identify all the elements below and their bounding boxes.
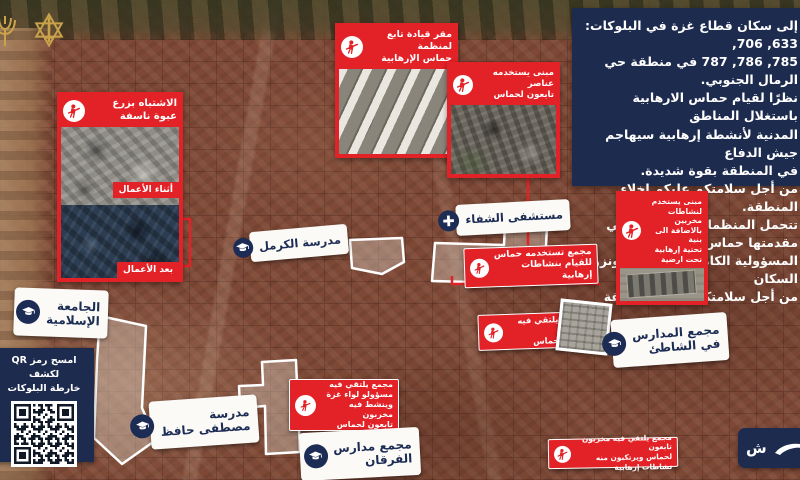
callout-building-text: مبنى يستخدمه عناصرتابعون لحماس [477,68,554,101]
callout-hamas-hq: مقر قيادة تابع لمنظمةحماس الإرهابية [335,23,458,158]
redbox-brigade-officials: مجمع يلتقي فيهمسؤولو لواء غزةوينشط فيه م… [289,379,399,431]
militant-icon [63,100,85,122]
militant-icon [470,258,490,278]
idf-emblems [0,10,68,50]
label-karmel-school-text: مدرسة الكرمل [258,232,341,254]
callout-underground-text: مبنى يستخدم لنشاطاتمخربين بالاضافة الى ب… [645,197,702,264]
redbox-brigade-officials-text: مجمع يلتقي فيهمسؤولو لواء غزةوينشط فيه م… [320,380,393,431]
militant-icon [341,36,363,58]
graduation-cap-icon [232,237,254,259]
callout-hq-header: مقر قيادة تابع لمنظمةحماس الإرهابية [339,27,454,69]
building-footprint [627,271,696,297]
callout-ied-text: الاشتباه بزرععبوة ناسفة [89,98,177,123]
satellite-photo-hq [339,69,454,154]
callout-ied-header: الاشتباه بزرععبوة ناسفة [61,96,179,127]
militant-icon [554,445,571,462]
label-furqan-schools-text: مجمع مدارسالفرقان [333,437,413,470]
tag-during-works: أثناء الأعمال [113,182,179,198]
broadcast-menorah-icon [0,10,20,50]
swoosh-logo-icon [773,437,800,459]
graduation-cap-icon [130,414,156,440]
militant-icon [295,395,316,416]
spokesperson-badge: ش [738,428,800,468]
label-islamic-university: الجامعةالإسلامية [13,287,109,338]
medical-cross-icon [438,210,460,232]
label-shifa-hospital-text: مستشفى الشفاء [465,208,563,228]
callout-building-header: مبنى يستخدمه عناصرتابعون لحماس [451,66,556,105]
callout-underground-header: مبنى يستخدم لنشاطاتمخربين بالاضافة الى ب… [620,195,704,268]
militant-icon [453,75,473,95]
callout-ied-planting: الاشتباه بزرععبوة ناسفة أثناء الأعمال بع… [57,92,183,282]
qr-code [11,401,77,467]
callout-building-operatives: مبنى يستخدمه عناصرتابعون لحماس [447,62,560,178]
satellite-photo-complex [620,268,704,301]
militant-icon [622,221,641,240]
label-mustafa-hafez-text: مدرسةمصطفى حافظ [159,404,251,439]
graduation-cap-icon [602,331,628,357]
label-shati-schools-text: مجمع المدارسفي الشاطئ [631,322,720,357]
graduation-cap-icon [303,444,328,469]
satellite-photo-building [451,105,556,174]
callout-hq-text: مقر قيادة تابع لمنظمةحماس الإرهابية [367,29,452,65]
redbox-militants-meet-text: مجمع يلتقي فيه مخربون تابعونلحماس ويرتكب… [575,433,673,473]
callout-underground-infrastructure: مبنى يستخدم لنشاطاتمخربين بالاضافة الى ب… [616,191,708,305]
militant-icon [484,323,504,343]
graduation-cap-icon [16,299,41,324]
label-shifa-hospital: مستشفى الشفاء [455,199,570,236]
qr-panel-text: امسح رمز QR لكشفخارطة البلوكات [0,354,90,396]
redbox-militants-meet: مجمع يلتقي فيه مخربون تابعونلحماس ويرتكب… [548,437,679,469]
badge-partial-text: ش [746,439,767,457]
redbox-compound-hamas-text: مجمع تستخدمه حماسللقيام بنشاطات إرهابية [492,247,592,285]
label-mustafa-hafez-school: مدرسةمصطفى حافظ [148,394,259,449]
tag-after-works: بعد الأعمال [117,262,179,278]
evacuation-warning-panel: إلى سكان قطاع غزة في البلوكات: 633, 706,… [572,8,800,186]
label-islamic-university-text: الجامعةالإسلامية [46,298,101,329]
idf-star-emblem-icon [30,10,68,50]
redbox-compound-hamas: مجمع تستخدمه حماسللقيام بنشاطات إرهابية [463,244,598,289]
evacuation-map-poster: إلى سكان قطاع غزة في البلوكات: 633, 706,… [0,0,800,480]
label-furqan-schools-complex: مجمع مدارسالفرقان [299,427,421,480]
qr-panel: امسح رمز QR لكشفخارطة البلوكات [0,348,94,462]
label-shati-schools-complex: مجمع المدارسفي الشاطئ [610,312,729,368]
